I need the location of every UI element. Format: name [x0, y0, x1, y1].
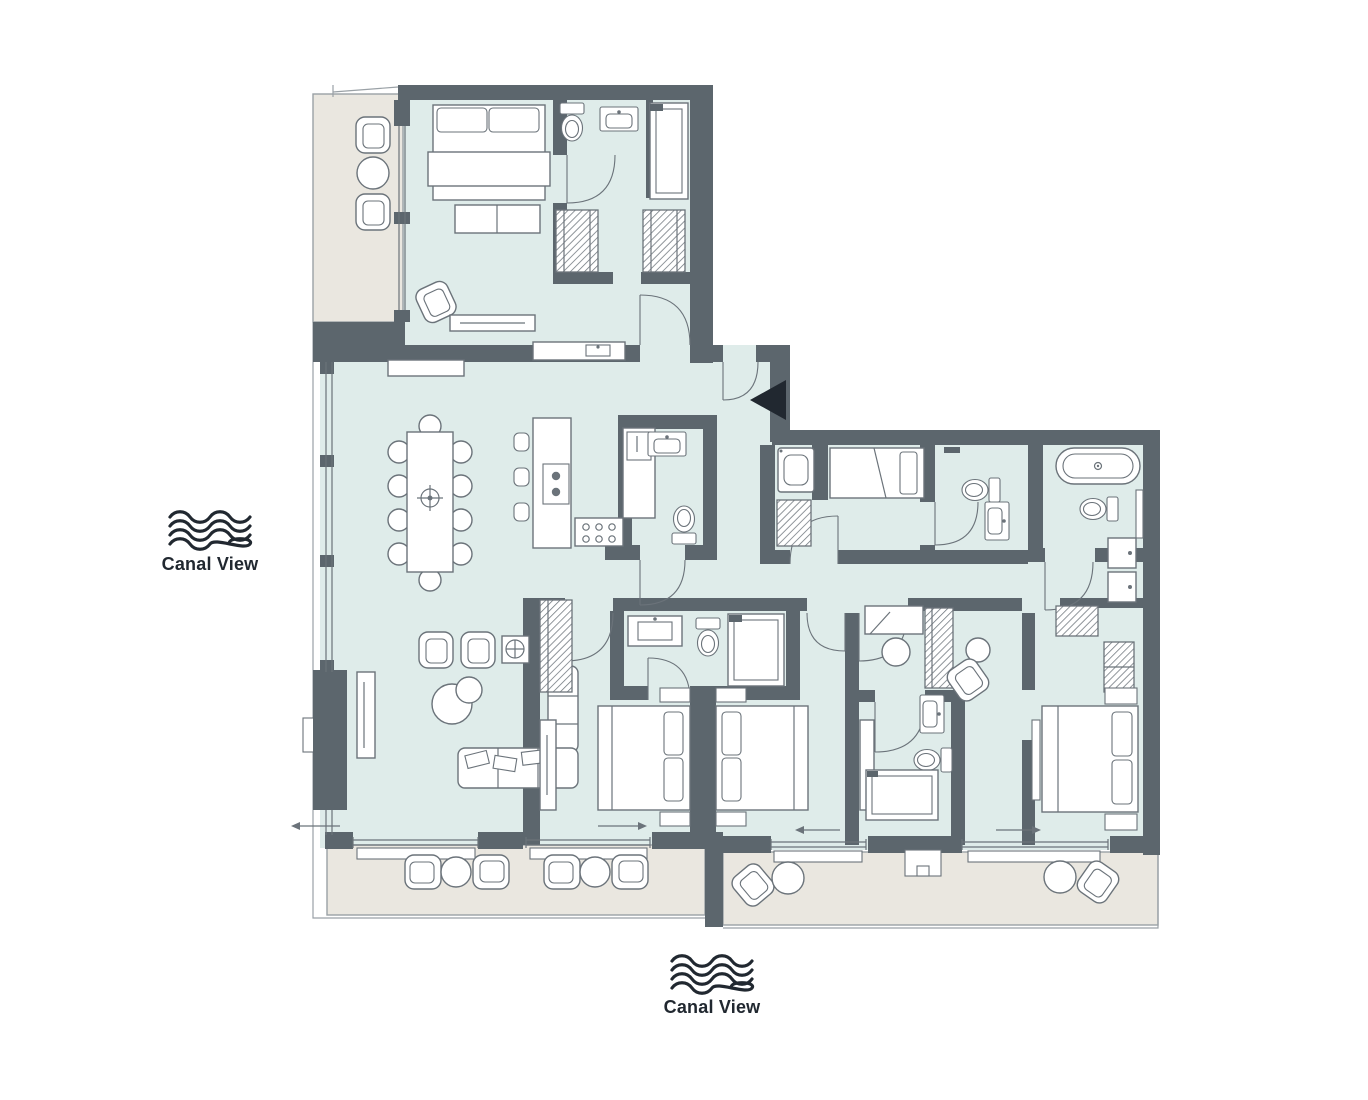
single-bed: [830, 448, 924, 498]
toilet: [914, 748, 952, 772]
sink: [920, 695, 944, 733]
shower: [650, 103, 688, 199]
canal-view-bottom-label: Canal View: [664, 997, 762, 1017]
bed-top-suite: [428, 105, 550, 200]
floor-plan: Canal View Canal View: [0, 0, 1368, 1100]
bar-stool: [514, 468, 529, 486]
balcony-table: [357, 157, 389, 189]
bathtub: [1056, 448, 1140, 484]
balcony-chair: [612, 855, 648, 889]
wardrobe: [1056, 606, 1098, 636]
floor-plan-page: Canal View Canal View: [0, 0, 1368, 1100]
bedroom3: [716, 688, 808, 826]
double-bed: [716, 688, 808, 826]
maid-room: [830, 448, 924, 498]
bar-stool: [514, 503, 529, 521]
wardrobe: [540, 600, 572, 692]
wardrobe: [556, 210, 598, 272]
canal-view-left-label: Canal View: [162, 554, 260, 574]
bed-bench: [455, 205, 540, 233]
toilet: [696, 618, 720, 656]
armchair: [419, 632, 453, 668]
balcony-table: [1044, 861, 1076, 893]
counter: [533, 342, 625, 360]
balcony-chair: [356, 117, 390, 153]
balcony-divider-notch: [917, 866, 929, 876]
balcony-table: [441, 857, 471, 887]
armchair: [461, 632, 495, 668]
sink: [985, 502, 1009, 540]
balcony-table: [772, 862, 804, 894]
balcony-chair: [544, 855, 580, 889]
stove: [575, 518, 623, 546]
wardrobe: [643, 210, 685, 272]
bar-stool: [514, 433, 529, 451]
sink-vanity: [628, 616, 682, 646]
balcony-chair: [356, 194, 390, 230]
wardrobe: [777, 500, 811, 546]
sideboard: [388, 360, 464, 376]
washing-machine: [778, 448, 814, 492]
side-table: [502, 636, 529, 663]
sink: [648, 432, 686, 456]
sink: [600, 107, 638, 131]
balcony-table: [580, 857, 610, 887]
balcony-chair: [473, 855, 509, 889]
double-bed: [598, 688, 690, 826]
dresser: [540, 720, 556, 810]
shower: [866, 770, 938, 820]
toilet: [672, 506, 696, 544]
shower: [728, 614, 784, 686]
tv-unit: [357, 672, 375, 758]
king-bed: [1032, 688, 1138, 830]
toilet: [560, 103, 584, 141]
balcony-chair: [405, 855, 441, 889]
toilet: [1080, 497, 1118, 521]
facade-bump: [303, 718, 314, 752]
wardrobe: [1104, 642, 1134, 692]
dresser: [450, 315, 535, 331]
toilet: [962, 478, 1000, 502]
